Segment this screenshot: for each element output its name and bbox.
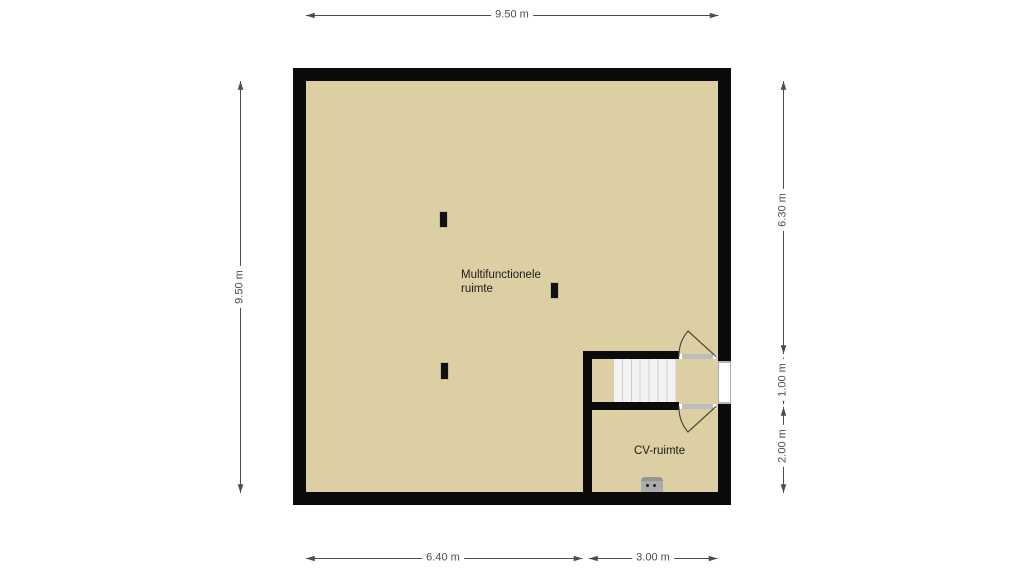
door-swing-bottom (679, 407, 716, 433)
dimension-label-right-2: 1.00 m (777, 359, 790, 401)
dimension-label-top: 9.50 m (491, 9, 533, 22)
dimension-label-right-1: 6.30 m (777, 189, 790, 231)
door-swing-top (679, 331, 716, 357)
plan-line-overlay (0, 0, 1024, 576)
dimension-label-bottom-1: 6.40 m (422, 552, 464, 565)
dimension-label-left: 9.50 m (234, 266, 247, 308)
dimension-label-bottom-2: 3.00 m (632, 552, 674, 565)
floorplan-canvas: Multifunctionele ruimte CV-ruimte 9.50 m… (0, 0, 1024, 576)
dimension-label-right-3: 2.00 m (777, 425, 790, 467)
